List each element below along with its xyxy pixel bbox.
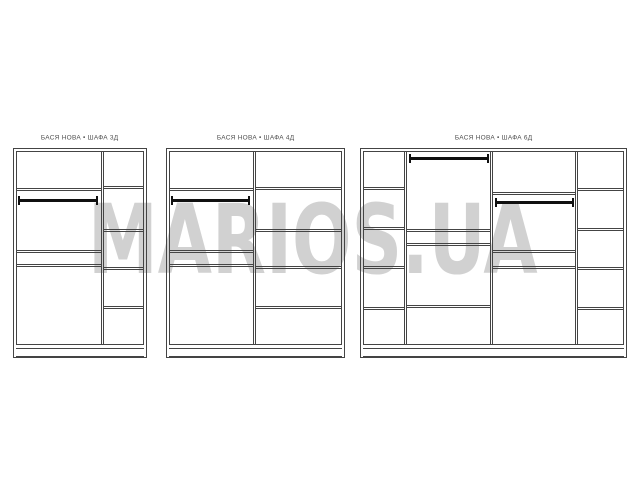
- column-divider: [575, 151, 578, 345]
- shelf-line: [578, 307, 624, 310]
- shelf-line: [363, 187, 404, 190]
- shelf-line: [407, 243, 490, 246]
- shelf-line: [169, 264, 253, 267]
- hanging-rod: [171, 199, 250, 202]
- hanging-rod: [409, 157, 489, 160]
- shelf-line: [407, 305, 490, 308]
- rod-end-cap: [487, 154, 489, 163]
- wardrobe-shafa-6d: [360, 148, 627, 358]
- plinth-line: [16, 348, 144, 349]
- shelf-line: [256, 229, 342, 232]
- wardrobe-label-text: БАСЯ НОВА • ШАФА 3Д: [41, 135, 119, 142]
- wardrobe-shafa-4d: [166, 148, 345, 358]
- column-divider: [404, 151, 407, 345]
- shelf-line: [493, 266, 575, 269]
- shelf-line: [16, 188, 101, 191]
- rod-end-cap: [495, 198, 497, 207]
- shelf-line: [363, 266, 404, 269]
- shelf-line: [104, 186, 144, 189]
- wardrobe-label-shafa-4d: БАСЯ НОВА • ШАФА 4Д: [166, 129, 345, 147]
- base-line: [363, 356, 624, 357]
- shelf-line: [578, 188, 624, 191]
- shelf-line: [363, 307, 404, 310]
- rod-end-cap: [18, 196, 20, 205]
- furniture-diagram-canvas: MARIOS.UA БАСЯ НОВА • ШАФА 3Д БАСЯ НОВА …: [0, 0, 640, 480]
- plinth-line: [363, 348, 624, 349]
- rod-end-cap: [248, 196, 250, 205]
- shelf-line: [256, 306, 342, 309]
- shelf-line: [16, 264, 101, 267]
- hanging-rod: [495, 201, 574, 204]
- rod-end-cap: [171, 196, 173, 205]
- wardrobe-label-text: БАСЯ НОВА • ШАФА 6Д: [455, 135, 533, 142]
- base-line: [16, 356, 144, 357]
- rod-end-cap: [96, 196, 98, 205]
- inner-frame: [16, 151, 144, 345]
- shelf-line: [493, 192, 575, 195]
- column-divider: [490, 151, 493, 345]
- shelf-line: [16, 250, 101, 253]
- shelf-line: [578, 267, 624, 270]
- inner-frame: [363, 151, 624, 345]
- rod-end-cap: [409, 154, 411, 163]
- shelf-line: [407, 229, 490, 232]
- column-divider: [253, 151, 256, 345]
- shelf-line: [256, 266, 342, 269]
- shelf-line: [169, 188, 253, 191]
- shelf-line: [363, 227, 404, 230]
- hanging-rod: [18, 199, 98, 202]
- shelf-line: [493, 250, 575, 253]
- shelf-line: [256, 187, 342, 190]
- wardrobe-shafa-3d: [13, 148, 147, 358]
- shelf-line: [578, 228, 624, 231]
- shelf-line: [104, 229, 144, 232]
- wardrobe-label-shafa-3d: БАСЯ НОВА • ШАФА 3Д: [13, 129, 147, 147]
- column-divider: [101, 151, 104, 345]
- shelf-line: [104, 267, 144, 270]
- shelf-line: [169, 250, 253, 253]
- rod-end-cap: [572, 198, 574, 207]
- plinth-line: [169, 348, 342, 349]
- shelf-line: [104, 306, 144, 309]
- base-line: [169, 356, 342, 357]
- wardrobe-label-shafa-6d: БАСЯ НОВА • ШАФА 6Д: [360, 129, 627, 147]
- wardrobe-label-text: БАСЯ НОВА • ШАФА 4Д: [217, 135, 295, 142]
